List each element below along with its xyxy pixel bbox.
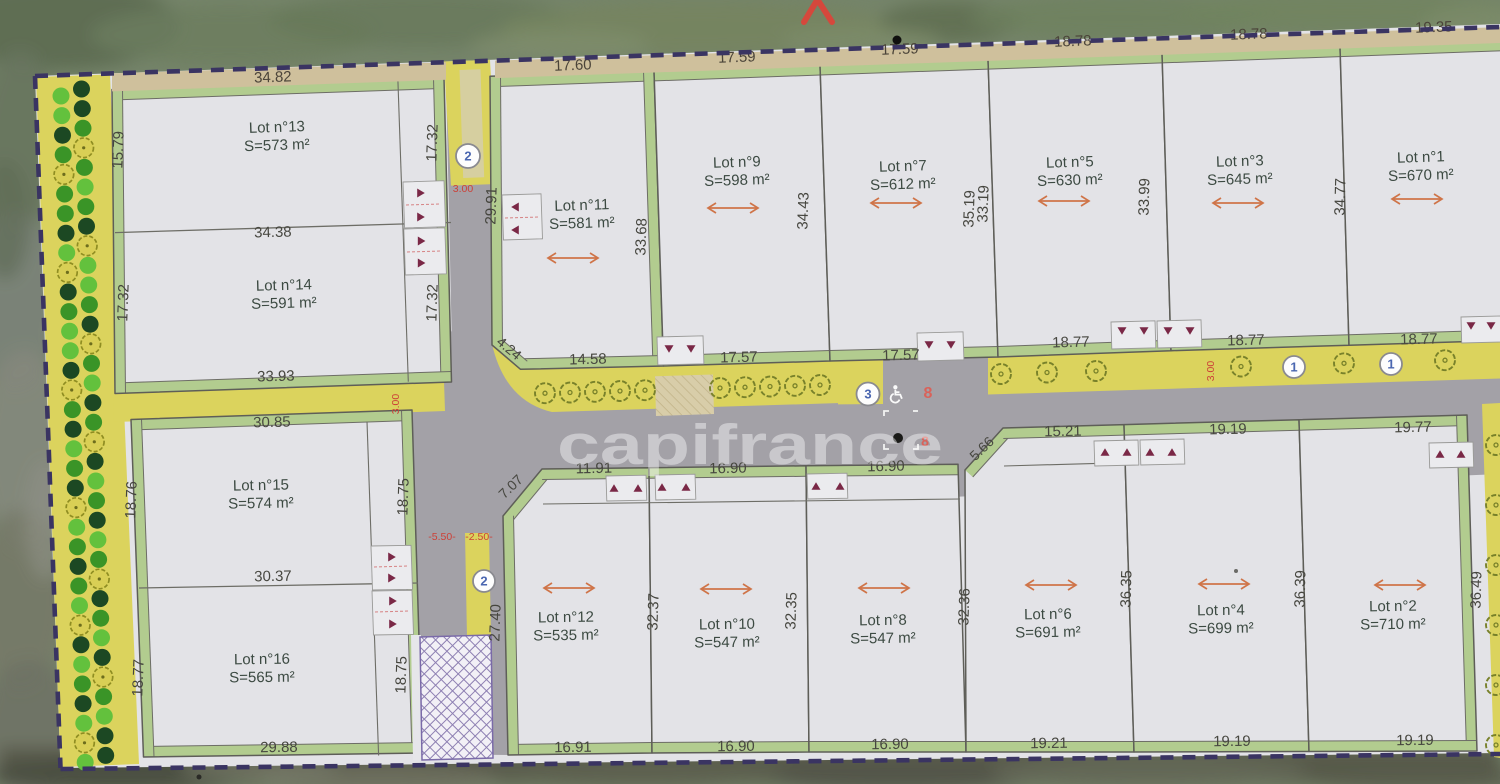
svg-text:8: 8: [924, 385, 933, 402]
svg-text:36.49: 36.49: [1467, 571, 1485, 609]
svg-text:S=645 m²: S=645 m²: [1207, 170, 1273, 189]
svg-text:S=573 m²: S=573 m²: [244, 136, 310, 155]
svg-text:3.00: 3.00: [390, 394, 402, 415]
svg-text:18.77: 18.77: [1052, 334, 1090, 352]
svg-text:1: 1: [1387, 357, 1394, 372]
svg-text:2: 2: [464, 149, 471, 164]
svg-text:16.91: 16.91: [554, 739, 592, 756]
svg-text:Lot n°16: Lot n°16: [234, 651, 290, 669]
svg-text:36.35: 36.35: [1117, 570, 1135, 608]
svg-text:Lot n°3: Lot n°3: [1216, 152, 1264, 170]
svg-text:S=547 m²: S=547 m²: [850, 630, 916, 648]
svg-text:18.75: 18.75: [392, 656, 410, 694]
svg-text:1: 1: [1290, 360, 1297, 375]
svg-text:27.40: 27.40: [486, 604, 504, 642]
svg-text:17.57: 17.57: [882, 347, 920, 365]
svg-text:29.88: 29.88: [260, 739, 298, 756]
svg-text:17.32: 17.32: [114, 284, 132, 322]
svg-text:16.90: 16.90: [717, 738, 755, 755]
svg-text:Lot n°10: Lot n°10: [699, 616, 755, 634]
svg-text:33.19: 33.19: [974, 185, 992, 223]
svg-text:32.35: 32.35: [782, 592, 800, 630]
svg-text:S=699 m²: S=699 m²: [1188, 619, 1254, 637]
svg-text:Lot n°7: Lot n°7: [879, 157, 927, 175]
svg-text:S=565 m²: S=565 m²: [229, 669, 295, 687]
svg-text:34.43: 34.43: [794, 192, 812, 230]
svg-text:30.85: 30.85: [253, 414, 291, 432]
svg-text:36.39: 36.39: [1291, 570, 1309, 608]
svg-text:Lot n°14: Lot n°14: [256, 276, 312, 295]
svg-text:Lot n°15: Lot n°15: [233, 476, 289, 494]
svg-text:-5.50-: -5.50-: [428, 531, 456, 543]
svg-text:Lot n°12: Lot n°12: [538, 609, 594, 627]
svg-text:19.19: 19.19: [1213, 733, 1251, 750]
svg-text:S=574 m²: S=574 m²: [228, 494, 294, 512]
svg-text:19.77: 19.77: [1394, 419, 1432, 437]
svg-text:Lot n°2: Lot n°2: [1369, 598, 1417, 616]
svg-text:19.19: 19.19: [1396, 732, 1434, 749]
svg-text:18.77: 18.77: [129, 659, 147, 697]
svg-text:18.75: 18.75: [394, 478, 412, 516]
svg-text:34.38: 34.38: [254, 223, 292, 241]
svg-text:Lot n°5: Lot n°5: [1046, 153, 1094, 171]
svg-text:S=598 m²: S=598 m²: [704, 171, 770, 190]
svg-text:19.21: 19.21: [1030, 735, 1068, 752]
svg-text:33.99: 33.99: [1135, 178, 1153, 216]
svg-text:S=535 m²: S=535 m²: [533, 627, 599, 645]
svg-text:18.77: 18.77: [1227, 332, 1265, 350]
svg-text:S=691 m²: S=691 m²: [1015, 624, 1081, 642]
svg-text:Lot n°1: Lot n°1: [1397, 148, 1445, 167]
svg-text:3.00: 3.00: [453, 183, 474, 195]
svg-text:17.57: 17.57: [720, 349, 758, 367]
svg-text:S=581 m²: S=581 m²: [549, 214, 615, 233]
svg-text:capifrance: capifrance: [557, 413, 943, 477]
svg-text:Lot n°13: Lot n°13: [249, 118, 306, 137]
svg-text:Lot n°11: Lot n°11: [554, 196, 609, 215]
svg-text:Lot n°4: Lot n°4: [1197, 602, 1245, 620]
svg-text:S=591 m²: S=591 m²: [251, 294, 317, 313]
svg-text:30.37: 30.37: [254, 568, 292, 586]
svg-text:Lot n°9: Lot n°9: [713, 153, 761, 171]
svg-text:S=630 m²: S=630 m²: [1037, 171, 1103, 190]
svg-text:14.58: 14.58: [569, 351, 607, 369]
svg-text:29.91: 29.91: [482, 187, 500, 225]
svg-text:S=710 m²: S=710 m²: [1360, 615, 1426, 633]
svg-text:Lot n°8: Lot n°8: [859, 612, 907, 630]
svg-text:15.21: 15.21: [1044, 423, 1082, 441]
svg-text:16.90: 16.90: [871, 736, 909, 753]
svg-text:S=670 m²: S=670 m²: [1388, 166, 1454, 185]
svg-text:33.68: 33.68: [632, 218, 650, 256]
svg-text:S=547 m²: S=547 m²: [694, 634, 760, 652]
svg-text:-2.50-: -2.50-: [465, 531, 493, 543]
svg-text:19.19: 19.19: [1209, 421, 1247, 439]
svg-text:34.77: 34.77: [1331, 178, 1349, 216]
svg-text:3.00: 3.00: [1205, 361, 1217, 382]
svg-text:S=612 m²: S=612 m²: [870, 175, 936, 194]
svg-text:3: 3: [864, 387, 871, 402]
svg-text:32.36: 32.36: [955, 588, 973, 626]
svg-text:2: 2: [480, 574, 487, 589]
svg-text:17.32: 17.32: [423, 124, 441, 162]
svg-text:34.82: 34.82: [254, 68, 292, 86]
svg-text:15.79: 15.79: [109, 131, 127, 169]
svg-text:17.32: 17.32: [423, 284, 441, 322]
svg-text:18.76: 18.76: [122, 481, 140, 519]
svg-text:18.77: 18.77: [1400, 331, 1438, 349]
svg-text:Lot n°6: Lot n°6: [1024, 606, 1072, 624]
svg-text:33.93: 33.93: [257, 368, 295, 386]
svg-text:32.37: 32.37: [644, 593, 662, 631]
